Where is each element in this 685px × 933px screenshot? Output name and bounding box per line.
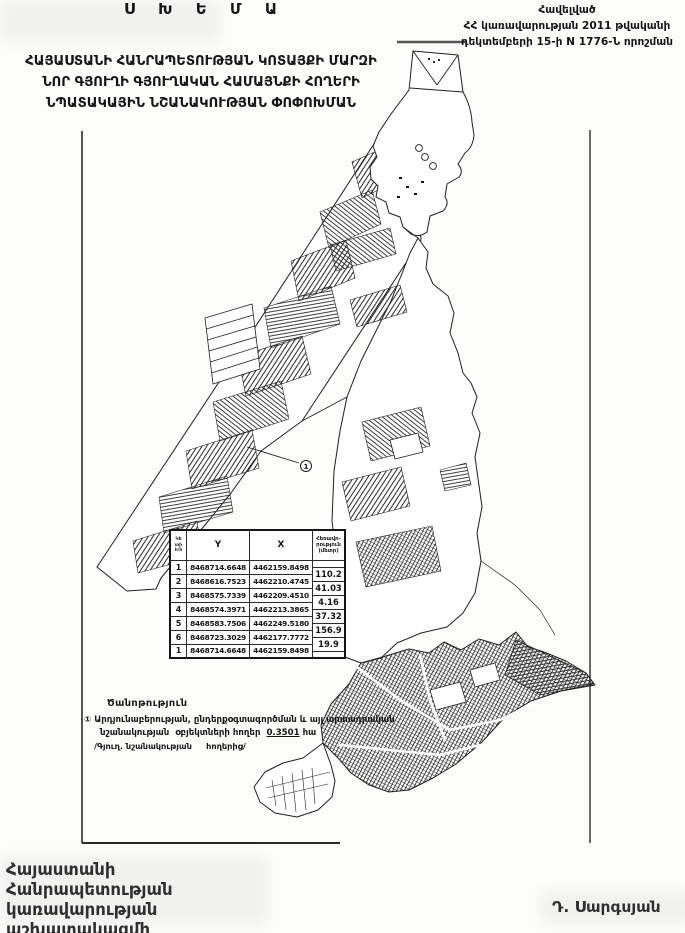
cell-distance: 19.9 [313, 637, 346, 651]
annex-reference: Հավելված ՀՀ կառավարության 2011 թվականի դ… [452, 2, 682, 50]
signatory-line: կառավարության աշխատակազմի [6, 900, 157, 933]
cell-dist-pad [313, 651, 346, 658]
cell-y: 8468616.7523 [187, 574, 250, 588]
cell-n: 3 [170, 588, 187, 602]
cell-n: 1 [170, 560, 187, 574]
cell-y: 8468575.7339 [187, 588, 250, 602]
cell-x: 4462177.7772 [250, 630, 313, 644]
coords-table: Կե տի հ/հ Y X Հեռավո- րություն (մետր) 18… [169, 529, 346, 659]
document-title: ՀԱՅԱՍՏԱՆԻ ՀԱՆՐԱՊԵՏՈՒԹՅԱՆ ԿՈՏԱՅՔԻ ՄԱՐԶԻ Ն… [2, 51, 400, 114]
coords-table-body: 18468714.66484462159.8498110.228468616.7… [170, 560, 345, 658]
note-line-1: ① Արդյունաբերության, ընդերքօգտագործման և… [84, 714, 384, 727]
scheme-title: Ս Խ Ե Մ Ա [0, 0, 410, 18]
cell-x: 4462209.4510 [250, 588, 313, 602]
cell-y: 8468723.3029 [187, 630, 250, 644]
notes-block: Ծանոթություն ① Արդյունաբերության, ընդերք… [84, 698, 384, 753]
cell-dist-pad [313, 560, 346, 567]
area-value: 0.3501 [266, 728, 299, 738]
title-line: ՀԱՅԱՍՏԱՆԻ ՀԱՆՐԱՊԵՏՈՒԹՅԱՆ ԿՈՏԱՅՔԻ ՄԱՐԶԻ [2, 51, 400, 72]
field-strips [205, 304, 260, 384]
cell-n: 2 [170, 574, 187, 588]
notes-heading: Ծանոթություն [107, 698, 384, 709]
cell-y: 8468574.3971 [187, 602, 250, 616]
cell-n: 5 [170, 616, 187, 630]
signatory-line: Հայաստանի Հանրապետության [6, 860, 173, 899]
shoe-parcels [254, 743, 335, 817]
header-point-no: Կե տի հ/հ [170, 530, 187, 560]
annex-line: դեկտեմբերի 15-ի N 1776-Ն որոշման [452, 34, 682, 50]
cell-distance: 37.32 [313, 609, 346, 623]
cell-distance: 4.16 [313, 595, 346, 609]
cell-y: 8468583.7506 [187, 616, 250, 630]
cell-x: 4462159.8498 [250, 644, 313, 658]
annex-line: Հավելված [452, 2, 682, 18]
signatory-name: Դ. Սարգսյան [552, 898, 661, 916]
cell-n: 6 [170, 630, 187, 644]
note-line-2: նշանակության օբյեկտների հողեր 0.3501 հա [100, 727, 384, 740]
cell-n: 4 [170, 602, 187, 616]
header-distance: Հեռավո- րություն (մետր) [313, 530, 346, 560]
callout-number: 1 [303, 462, 308, 471]
cell-x: 4462213.3865 [250, 602, 313, 616]
cell-x: 4462159.8498 [250, 560, 313, 574]
note-line-3: /Գյուղ. նշանակության հողերից/ [94, 740, 384, 753]
document-page: 1 Ս Խ Ե Մ Ա ՀԱՅԱՍՏԱՆԻ ՀԱՆՐԱՊԵՏՈՒԹՅԱՆ ԿՈՏ… [0, 0, 685, 933]
header-x: X [250, 530, 313, 560]
cell-n: 1 [170, 644, 187, 658]
cell-y: 8468714.6648 [187, 560, 250, 574]
cell-distance: 41.03 [313, 581, 346, 595]
cadastral-map: 1 [0, 0, 685, 933]
annex-line: ՀՀ կառավարության 2011 թվականի [452, 18, 682, 34]
cell-distance: 110.2 [313, 567, 346, 581]
cell-x: 4462210.4745 [250, 574, 313, 588]
table-header-row: Կե տի հ/հ Y X Հեռավո- րություն (մետր) [170, 530, 345, 560]
header-y: Y [187, 530, 250, 560]
table-row: 18468714.66484462159.8498 [170, 560, 345, 567]
cell-distance: 156.9 [313, 623, 346, 637]
title-line: ՆՊԱՏԱԿԱՅԻՆ ՆՇԱՆԱԿՈՒԹՅԱՆ ՓՈՓՈԽՄԱՆ [2, 93, 400, 114]
cell-y: 8468714.6648 [187, 644, 250, 658]
signatory-title: Հայաստանի Հանրապետության կառավարության ա… [6, 860, 264, 933]
cell-x: 4462249.5180 [250, 616, 313, 630]
title-line: ՆՈՐ ԳՅՈՒՂԻ ԳՅՈՒՂԱԿԱՆ ՀԱՄԱՅՆՔԻ ՀՈՂԵՐԻ [2, 72, 400, 93]
